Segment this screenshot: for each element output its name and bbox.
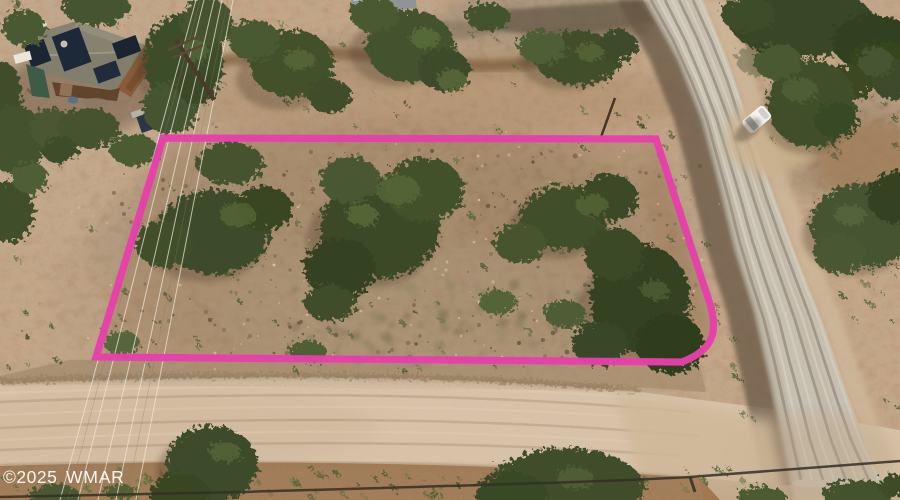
svg-text:WMAR: WMAR: [66, 467, 125, 487]
svg-text:©2025: ©2025: [3, 467, 57, 487]
